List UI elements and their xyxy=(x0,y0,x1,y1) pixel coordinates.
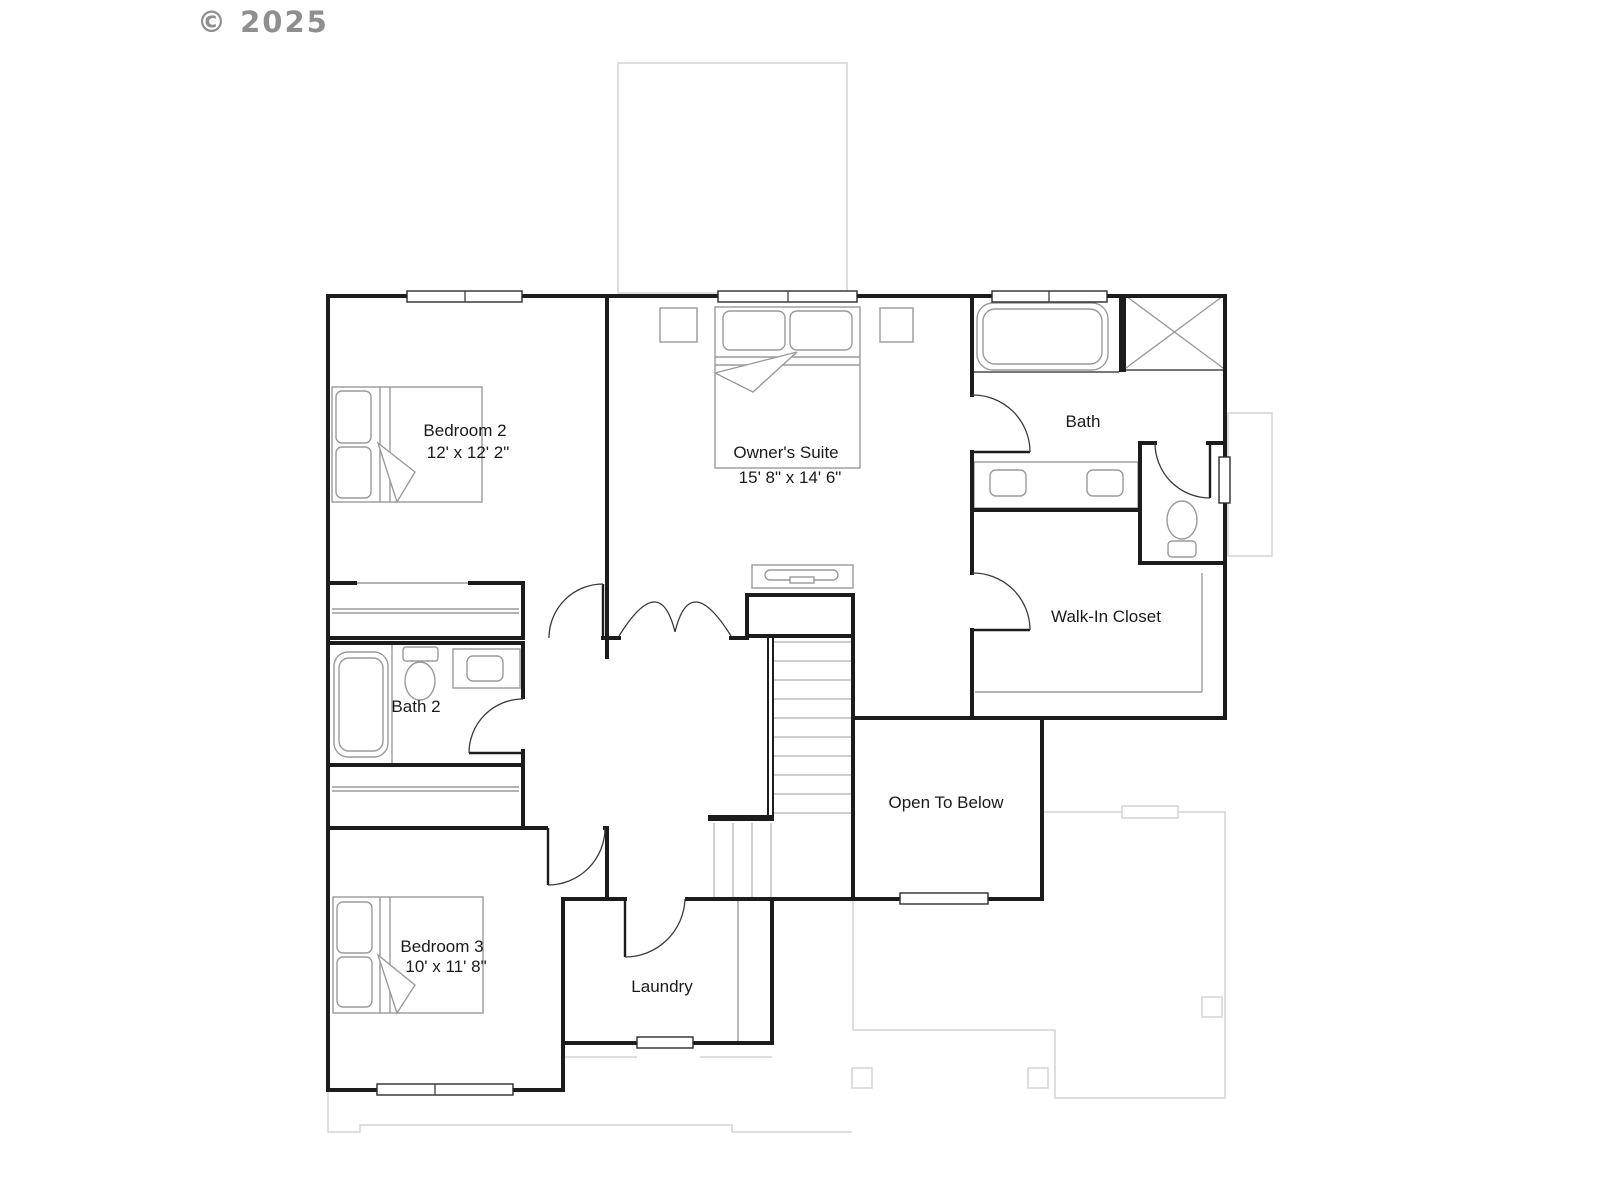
door-laundry xyxy=(625,899,685,957)
window-icon xyxy=(637,1037,693,1048)
bath-label: Bath xyxy=(1066,412,1101,431)
stairs-icon xyxy=(708,637,851,897)
nightstand-icon xyxy=(660,308,697,342)
closet-shelf-lines xyxy=(975,573,1202,692)
floor-plan-canvas: Bedroom 2 12' x 12' 2" Owner's Suite 15'… xyxy=(0,0,1600,1200)
bath-2-label: Bath 2 xyxy=(391,697,440,716)
toilet-icon xyxy=(1167,501,1197,557)
bedroom-2-label: Bedroom 2 xyxy=(423,421,506,440)
bedroom-2-dims: 12' x 12' 2" xyxy=(427,443,509,462)
door-walk-in-closet xyxy=(972,573,1030,630)
double-door-owners-suite xyxy=(619,602,731,636)
door-bedroom-3 xyxy=(548,828,605,885)
sink-icon xyxy=(990,470,1026,496)
bathtub-icon xyxy=(972,303,1119,372)
stair-landing xyxy=(747,595,853,636)
door-bath-2 xyxy=(469,699,525,753)
vanity-sink xyxy=(453,649,520,688)
copyright-watermark: © 2025 xyxy=(197,5,329,39)
owners-suite-dims: 15' 8" x 14' 6" xyxy=(739,468,842,487)
room-labels: Bedroom 2 12' x 12' 2" Owner's Suite 15'… xyxy=(391,412,1161,996)
porch-post xyxy=(1028,1068,1048,1088)
porch-post xyxy=(852,1068,872,1088)
owners-suite-label: Owner's Suite xyxy=(733,443,838,462)
stair-railing xyxy=(772,637,774,818)
bedroom-3-label: Bedroom 3 xyxy=(400,937,483,956)
toilet-icon xyxy=(403,647,438,700)
window-icon xyxy=(1219,457,1230,503)
door-bedroom-2 xyxy=(549,584,603,638)
laundry-label: Laundry xyxy=(631,977,693,996)
stair-railing xyxy=(767,637,769,818)
walk-in-closet-label: Walk-In Closet xyxy=(1051,607,1161,626)
shower-icon xyxy=(1119,294,1223,372)
open-to-below-label: Open To Below xyxy=(889,793,1005,812)
porch-post xyxy=(1202,997,1222,1017)
door-bath xyxy=(972,395,1030,452)
sink-icon xyxy=(467,656,503,681)
window-icon xyxy=(900,893,988,904)
bathtub-icon xyxy=(334,645,392,763)
bedroom-3-dims: 10' x 11' 8" xyxy=(405,957,486,976)
sink-icon xyxy=(1087,470,1123,496)
vanity-double-sink xyxy=(974,462,1138,508)
closet-shelf-lines xyxy=(332,787,519,791)
window-icon xyxy=(377,1084,513,1095)
door-water-closet xyxy=(1155,443,1210,498)
closet-shelf-lines xyxy=(332,583,519,613)
nightstand-icon xyxy=(880,308,913,342)
dresser-icon xyxy=(752,565,853,588)
